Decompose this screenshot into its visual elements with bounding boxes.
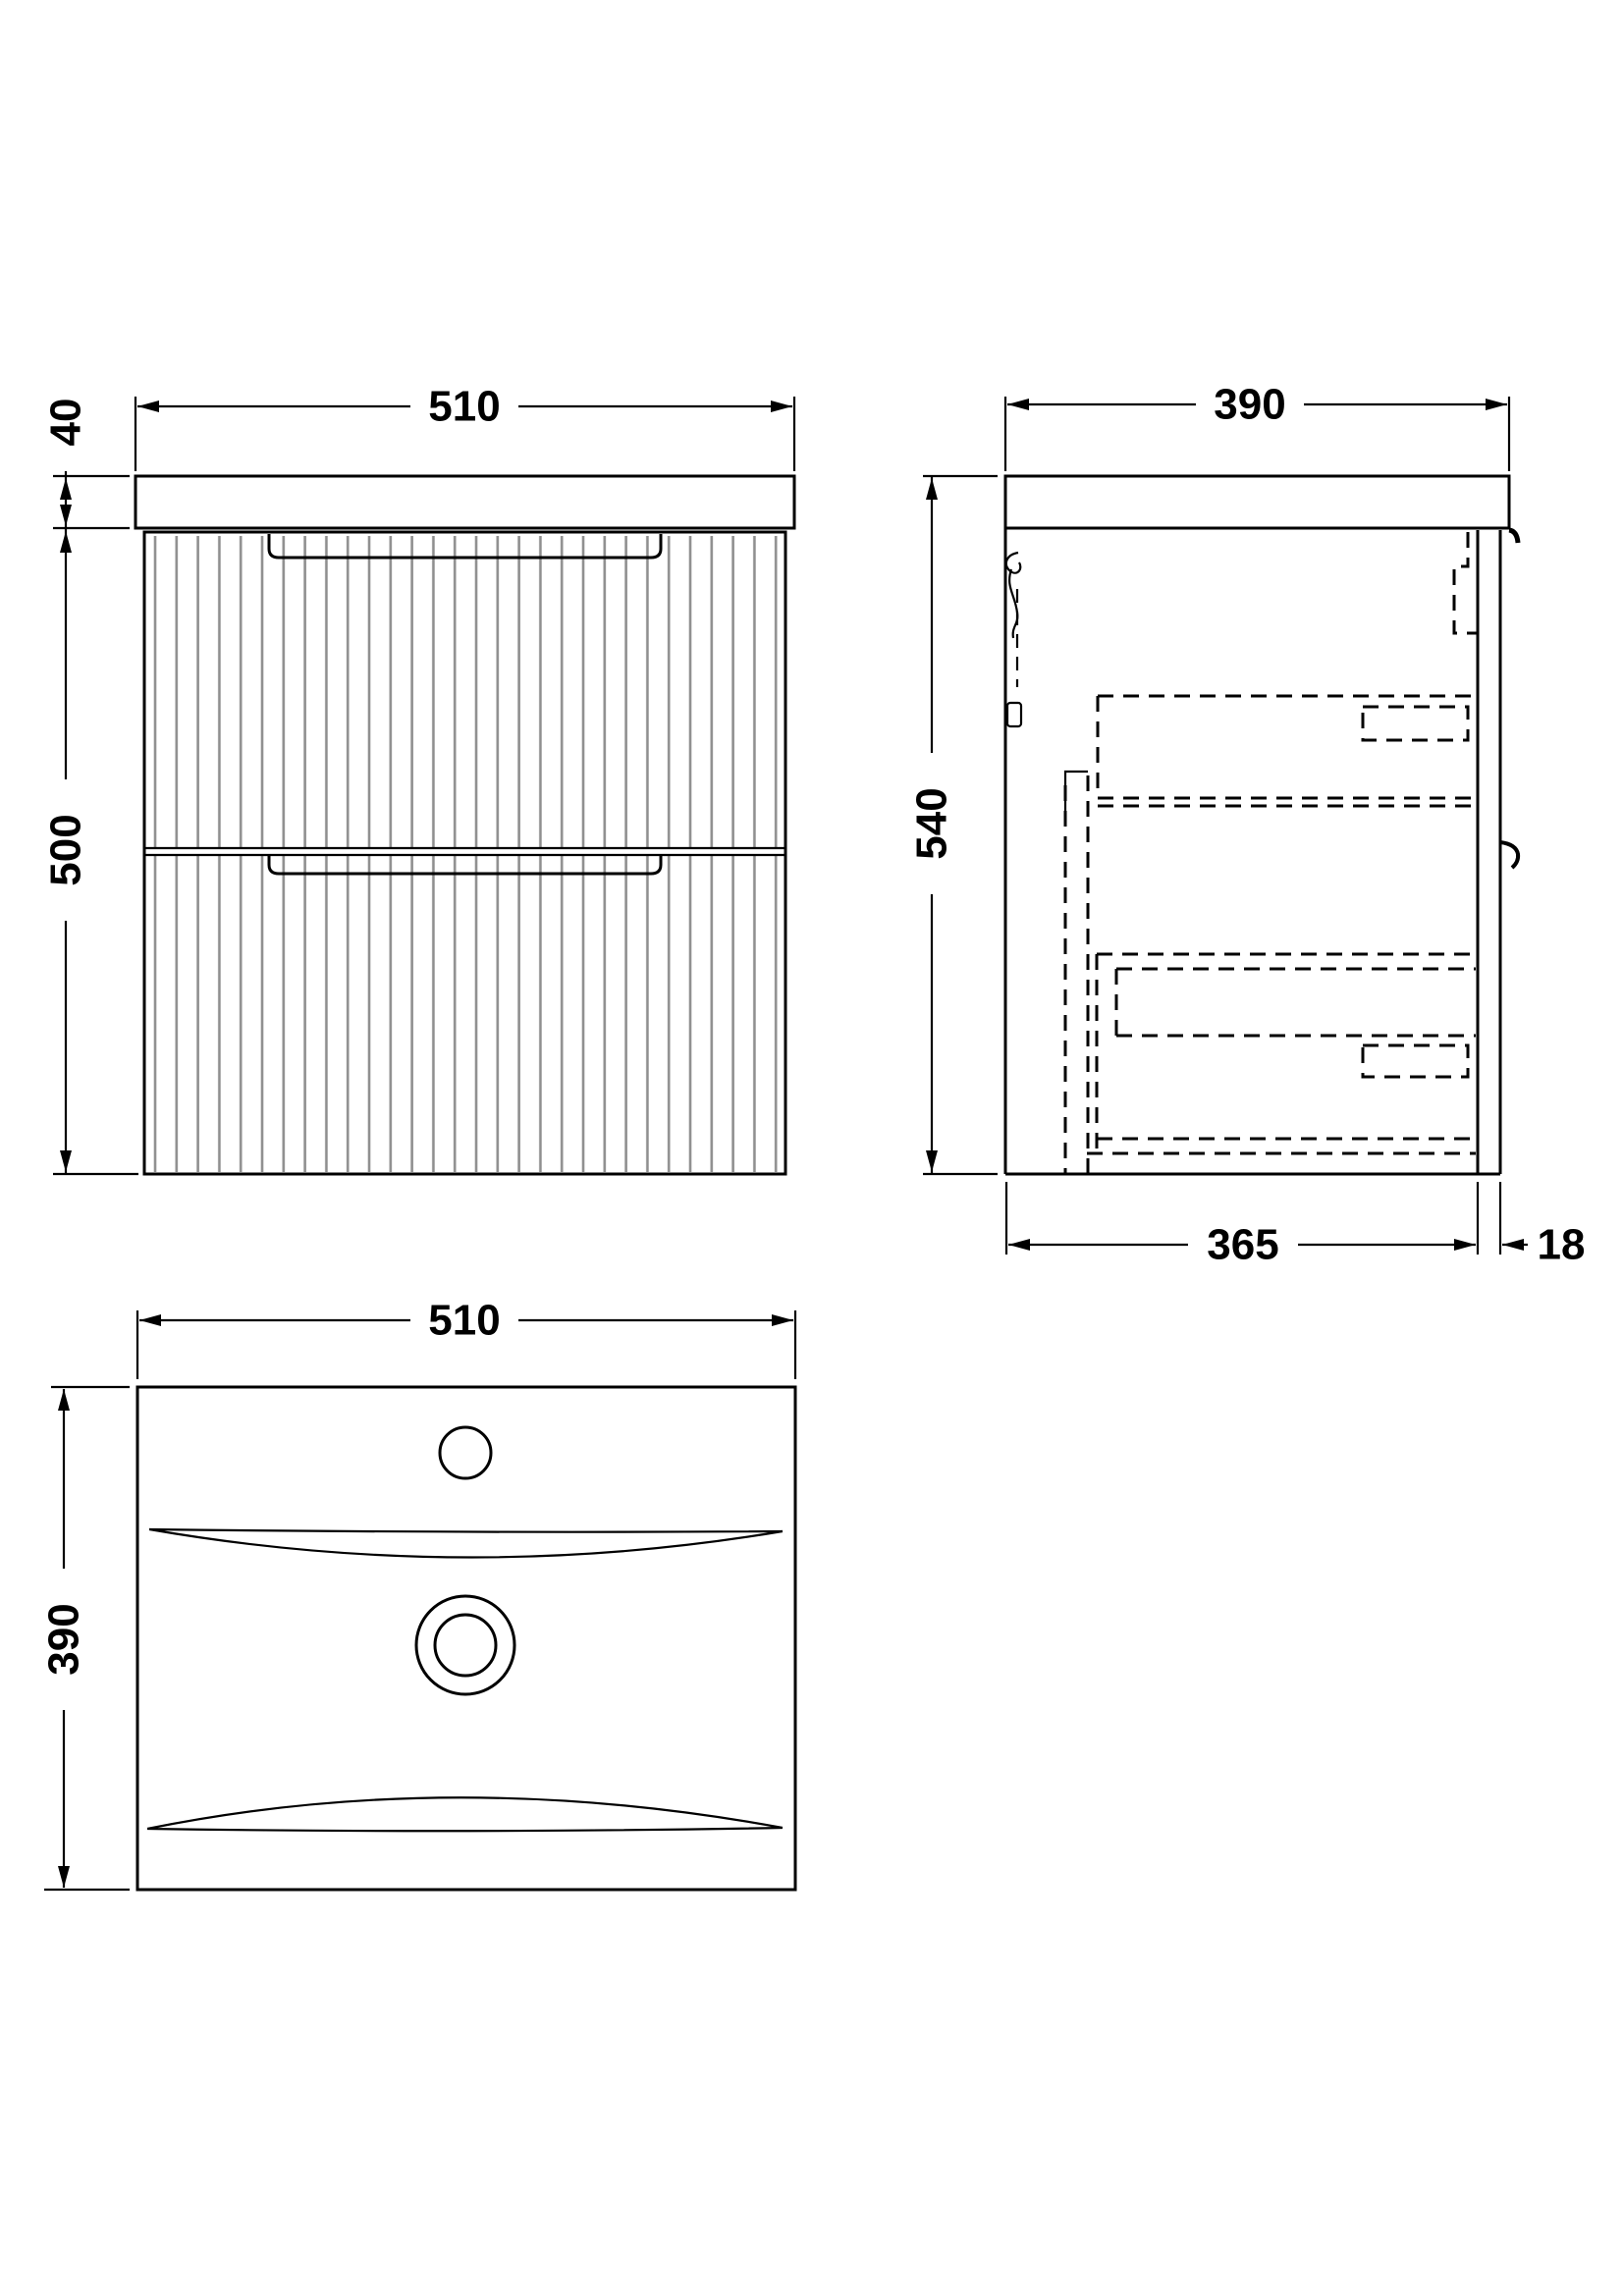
front-width-dimension: 510	[135, 383, 794, 472]
front-drawer1-fluting	[147, 536, 784, 848]
side-back-strip-hidden	[1065, 772, 1088, 1174]
side-basin-slab	[1005, 476, 1509, 528]
drawer2-runner	[1363, 1045, 1468, 1077]
back-strip-top-cap	[1065, 772, 1088, 815]
plan-depth-label-group: 390	[39, 1569, 88, 1710]
side-front-panel-label: 18	[1538, 1221, 1586, 1269]
plan-depth-dimension: 390	[39, 1387, 130, 1890]
technical-drawing-canvas: 510 40 500	[0, 0, 1623, 2296]
plan-depth-label: 390	[40, 1603, 88, 1675]
side-depth-dimension: 390	[1005, 381, 1509, 472]
side-wall-bracket	[1006, 553, 1021, 726]
arrowhead-left	[139, 1314, 161, 1326]
wall-bracket-fixing	[1007, 703, 1021, 726]
arrowhead-left	[1008, 1239, 1030, 1251]
side-view: 390 540 365 18	[907, 381, 1585, 1269]
side-drawer2-hidden	[1087, 954, 1476, 1153]
front-height-dimensions: 40 500	[41, 373, 138, 1174]
front-drawer2-fluting	[147, 856, 784, 1172]
arrowhead	[1502, 1239, 1524, 1251]
side-height-dimension: 540	[907, 476, 998, 1174]
side-basin-front-lip	[1509, 530, 1518, 543]
side-mid-handle-lip	[1500, 842, 1518, 868]
basin-plan-view: 510 390	[39, 1297, 795, 1891]
arrowhead-right	[772, 1314, 793, 1326]
front-basin-height-label-group: 40	[41, 373, 90, 471]
arrowhead-left	[1007, 399, 1029, 410]
arrowhead	[60, 505, 72, 526]
arrowhead-bottom	[58, 1866, 70, 1888]
front-cabinet-height-label: 500	[42, 814, 90, 885]
plan-bowl-front-edge	[147, 1797, 783, 1831]
arrowhead	[60, 1150, 72, 1172]
front-view: 510 40 500	[41, 373, 794, 1174]
front-width-label: 510	[428, 383, 500, 431]
plan-bowl-back-edge	[149, 1529, 783, 1558]
side-drawer1-hidden	[1098, 696, 1476, 806]
side-height-label: 540	[908, 787, 956, 859]
side-depth-label: 390	[1214, 381, 1285, 429]
wall-bracket-hook	[1006, 553, 1020, 638]
arrowhead-bottom	[926, 1150, 938, 1172]
plan-waste-outer	[416, 1596, 514, 1694]
front-basin-slab	[135, 476, 794, 528]
side-drawer-front-bracket-hidden	[1454, 532, 1478, 633]
plan-width-dimension: 510	[137, 1297, 795, 1380]
arrowhead-left	[137, 400, 159, 412]
front-cabinet-height-label-group: 500	[41, 779, 90, 921]
arrowhead-right	[1486, 399, 1507, 410]
arrowhead-top	[58, 1389, 70, 1411]
side-bottom-dimensions: 365 18	[1006, 1182, 1585, 1269]
arrowhead-top	[926, 478, 938, 500]
front-basin-height-label: 40	[42, 399, 90, 447]
drawer1-runner	[1363, 707, 1468, 740]
arrowhead	[60, 531, 72, 553]
drawing-page: 510 40 500	[0, 0, 1623, 2296]
arrowhead	[60, 478, 72, 500]
side-cabinet-depth-label: 365	[1207, 1221, 1278, 1269]
arrowhead-right	[1454, 1239, 1476, 1251]
arrowhead-right	[771, 400, 792, 412]
plan-width-label: 510	[428, 1297, 500, 1345]
plan-tap-hole	[440, 1427, 491, 1478]
plan-waste-inner	[435, 1615, 496, 1676]
side-height-label-group: 540	[907, 753, 956, 894]
